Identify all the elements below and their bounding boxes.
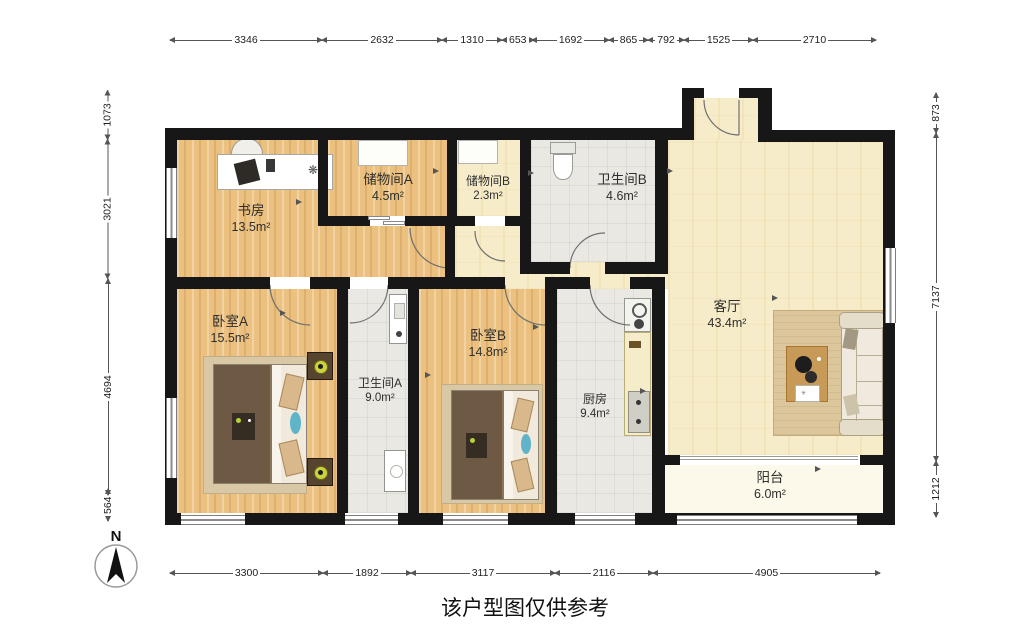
coffee-table-icon: ✳ bbox=[786, 346, 828, 402]
dim-top-0: 3346 bbox=[170, 32, 322, 48]
bed-icon bbox=[451, 390, 539, 500]
entry-vestibule-floor bbox=[694, 98, 758, 142]
dim-top-2: 1310 bbox=[442, 32, 502, 48]
window-strip bbox=[166, 398, 177, 478]
washer-icon bbox=[384, 450, 406, 492]
dim-left-1: 3021 bbox=[100, 140, 116, 279]
kitchen-counter-icon bbox=[624, 332, 651, 436]
sink-icon bbox=[389, 294, 407, 344]
sliding-door-icon bbox=[383, 221, 405, 225]
toilet-icon bbox=[550, 142, 576, 154]
bed-icon bbox=[213, 364, 307, 484]
dim-bottom-0: 3300 bbox=[170, 565, 323, 581]
window-strip bbox=[677, 515, 857, 525]
dim-top-8: 2710 bbox=[753, 32, 876, 48]
toilet-icon bbox=[553, 154, 573, 180]
dim-bottom-3: 2116 bbox=[555, 565, 653, 581]
cabinet-icon bbox=[458, 140, 498, 164]
window-strip bbox=[166, 168, 177, 238]
dim-bottom-1: 1892 bbox=[323, 565, 411, 581]
dim-top-6: 792 bbox=[648, 32, 684, 48]
dim-left-0: 1073 bbox=[100, 91, 116, 140]
desk-icon: ❋ bbox=[217, 154, 333, 190]
north-indicator: N bbox=[88, 528, 144, 594]
dim-top-3: 653 bbox=[502, 32, 532, 48]
dim-top-5: 865 bbox=[609, 32, 648, 48]
window-strip bbox=[885, 248, 896, 323]
sliding-door-icon bbox=[368, 216, 390, 220]
dim-top-4: 1692 bbox=[532, 32, 609, 48]
caption: 该户型图仅供参考 bbox=[320, 592, 730, 622]
dim-right-2: 1212 bbox=[928, 461, 944, 517]
nightstand-icon bbox=[307, 352, 333, 380]
floorplan-page: LIANJIA.com ❋ bbox=[0, 0, 1030, 633]
dim-right-1: 7137 bbox=[928, 133, 944, 461]
sofa-icon bbox=[841, 314, 883, 434]
dim-left-2: 4694 bbox=[100, 279, 116, 495]
balcony-opening bbox=[680, 456, 858, 457]
dim-top-1: 2632 bbox=[322, 32, 442, 48]
dim-bottom-4: 4905 bbox=[653, 565, 880, 581]
cabinet-icon bbox=[358, 140, 408, 166]
room-study-floor-ext bbox=[318, 226, 445, 277]
dim-left-3: 564 bbox=[100, 495, 116, 521]
room-balcony-floor bbox=[665, 465, 883, 513]
stove-icon bbox=[624, 298, 651, 332]
compass-icon bbox=[93, 543, 139, 589]
room-bath-b-floor bbox=[531, 140, 655, 262]
dim-right-0: 873 bbox=[928, 93, 944, 133]
floorplan: ❋ bbox=[165, 88, 895, 525]
nightstand-icon bbox=[307, 458, 333, 486]
dim-top-7: 1525 bbox=[684, 32, 753, 48]
dim-bottom-2: 3117 bbox=[411, 565, 555, 581]
